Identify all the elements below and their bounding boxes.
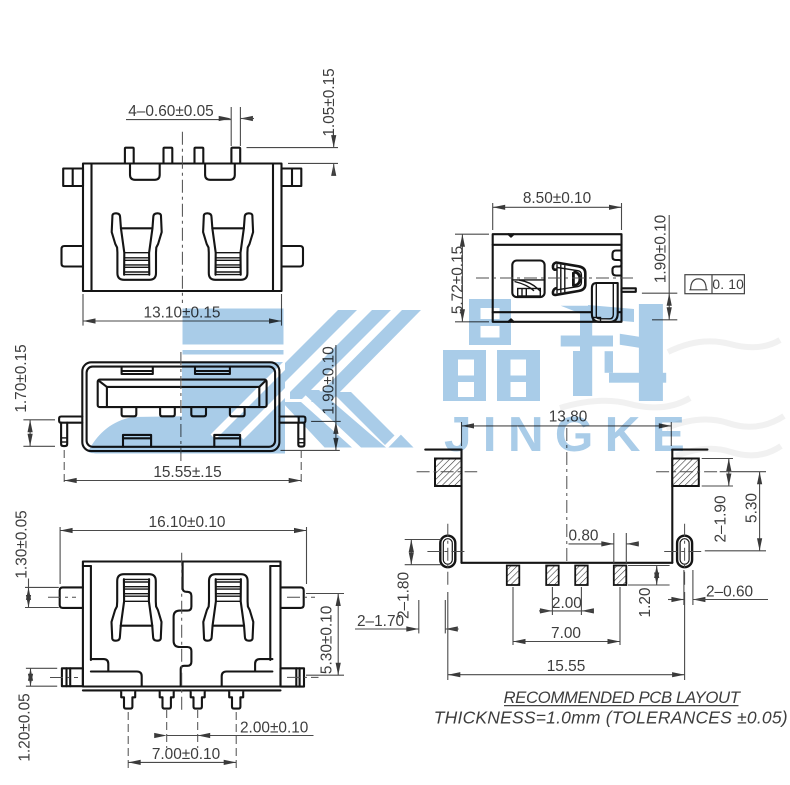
svg-text:1.20±0.05: 1.20±0.05 (16, 693, 33, 761)
svg-text:THICKNESS=1.0mm (TOLERANCES: THICKNESS=1.0mm (TOLERANCES ±0.05) (434, 708, 788, 728)
svg-text:0.80: 0.80 (569, 528, 599, 545)
svg-text:2–1.70: 2–1.70 (357, 613, 404, 630)
svg-text:7.00±0.10: 7.00±0.10 (152, 746, 220, 763)
svg-text:15.55±.15: 15.55±.15 (153, 464, 221, 481)
svg-text:4–0.60±0.05: 4–0.60±0.05 (128, 103, 213, 120)
svg-text:0. 10: 0. 10 (712, 277, 744, 292)
svg-text:5.30±0.10: 5.30±0.10 (319, 606, 336, 674)
svg-text:16.10±0.10: 16.10±0.10 (149, 514, 226, 531)
svg-text:JINGKE: JINGKE (444, 407, 696, 462)
svg-text:1.05±0.15: 1.05±0.15 (321, 68, 338, 136)
svg-text:1.20: 1.20 (637, 588, 654, 618)
svg-text:1.90±0.10: 1.90±0.10 (653, 215, 670, 283)
svg-text:5.30: 5.30 (744, 493, 761, 523)
svg-text:1.70±0.15: 1.70±0.15 (13, 344, 30, 412)
svg-text:2–0.60: 2–0.60 (706, 584, 753, 601)
svg-text:2–1.90: 2–1.90 (713, 495, 730, 542)
svg-text:7.00: 7.00 (551, 625, 581, 642)
svg-text:15.55: 15.55 (547, 658, 586, 675)
svg-text:2.00: 2.00 (552, 595, 582, 612)
svg-text:5.72±0.15: 5.72±0.15 (450, 246, 467, 314)
svg-text:2–1.80: 2–1.80 (396, 572, 413, 619)
svg-text:8.50±0.10: 8.50±0.10 (523, 190, 591, 207)
svg-text:RECOMMENDED PCB LAYOUT: RECOMMENDED PCB LAYOUT (503, 688, 741, 707)
svg-text:1.30±0.05: 1.30±0.05 (13, 510, 30, 578)
svg-text:2.00±0.10: 2.00±0.10 (240, 720, 308, 737)
